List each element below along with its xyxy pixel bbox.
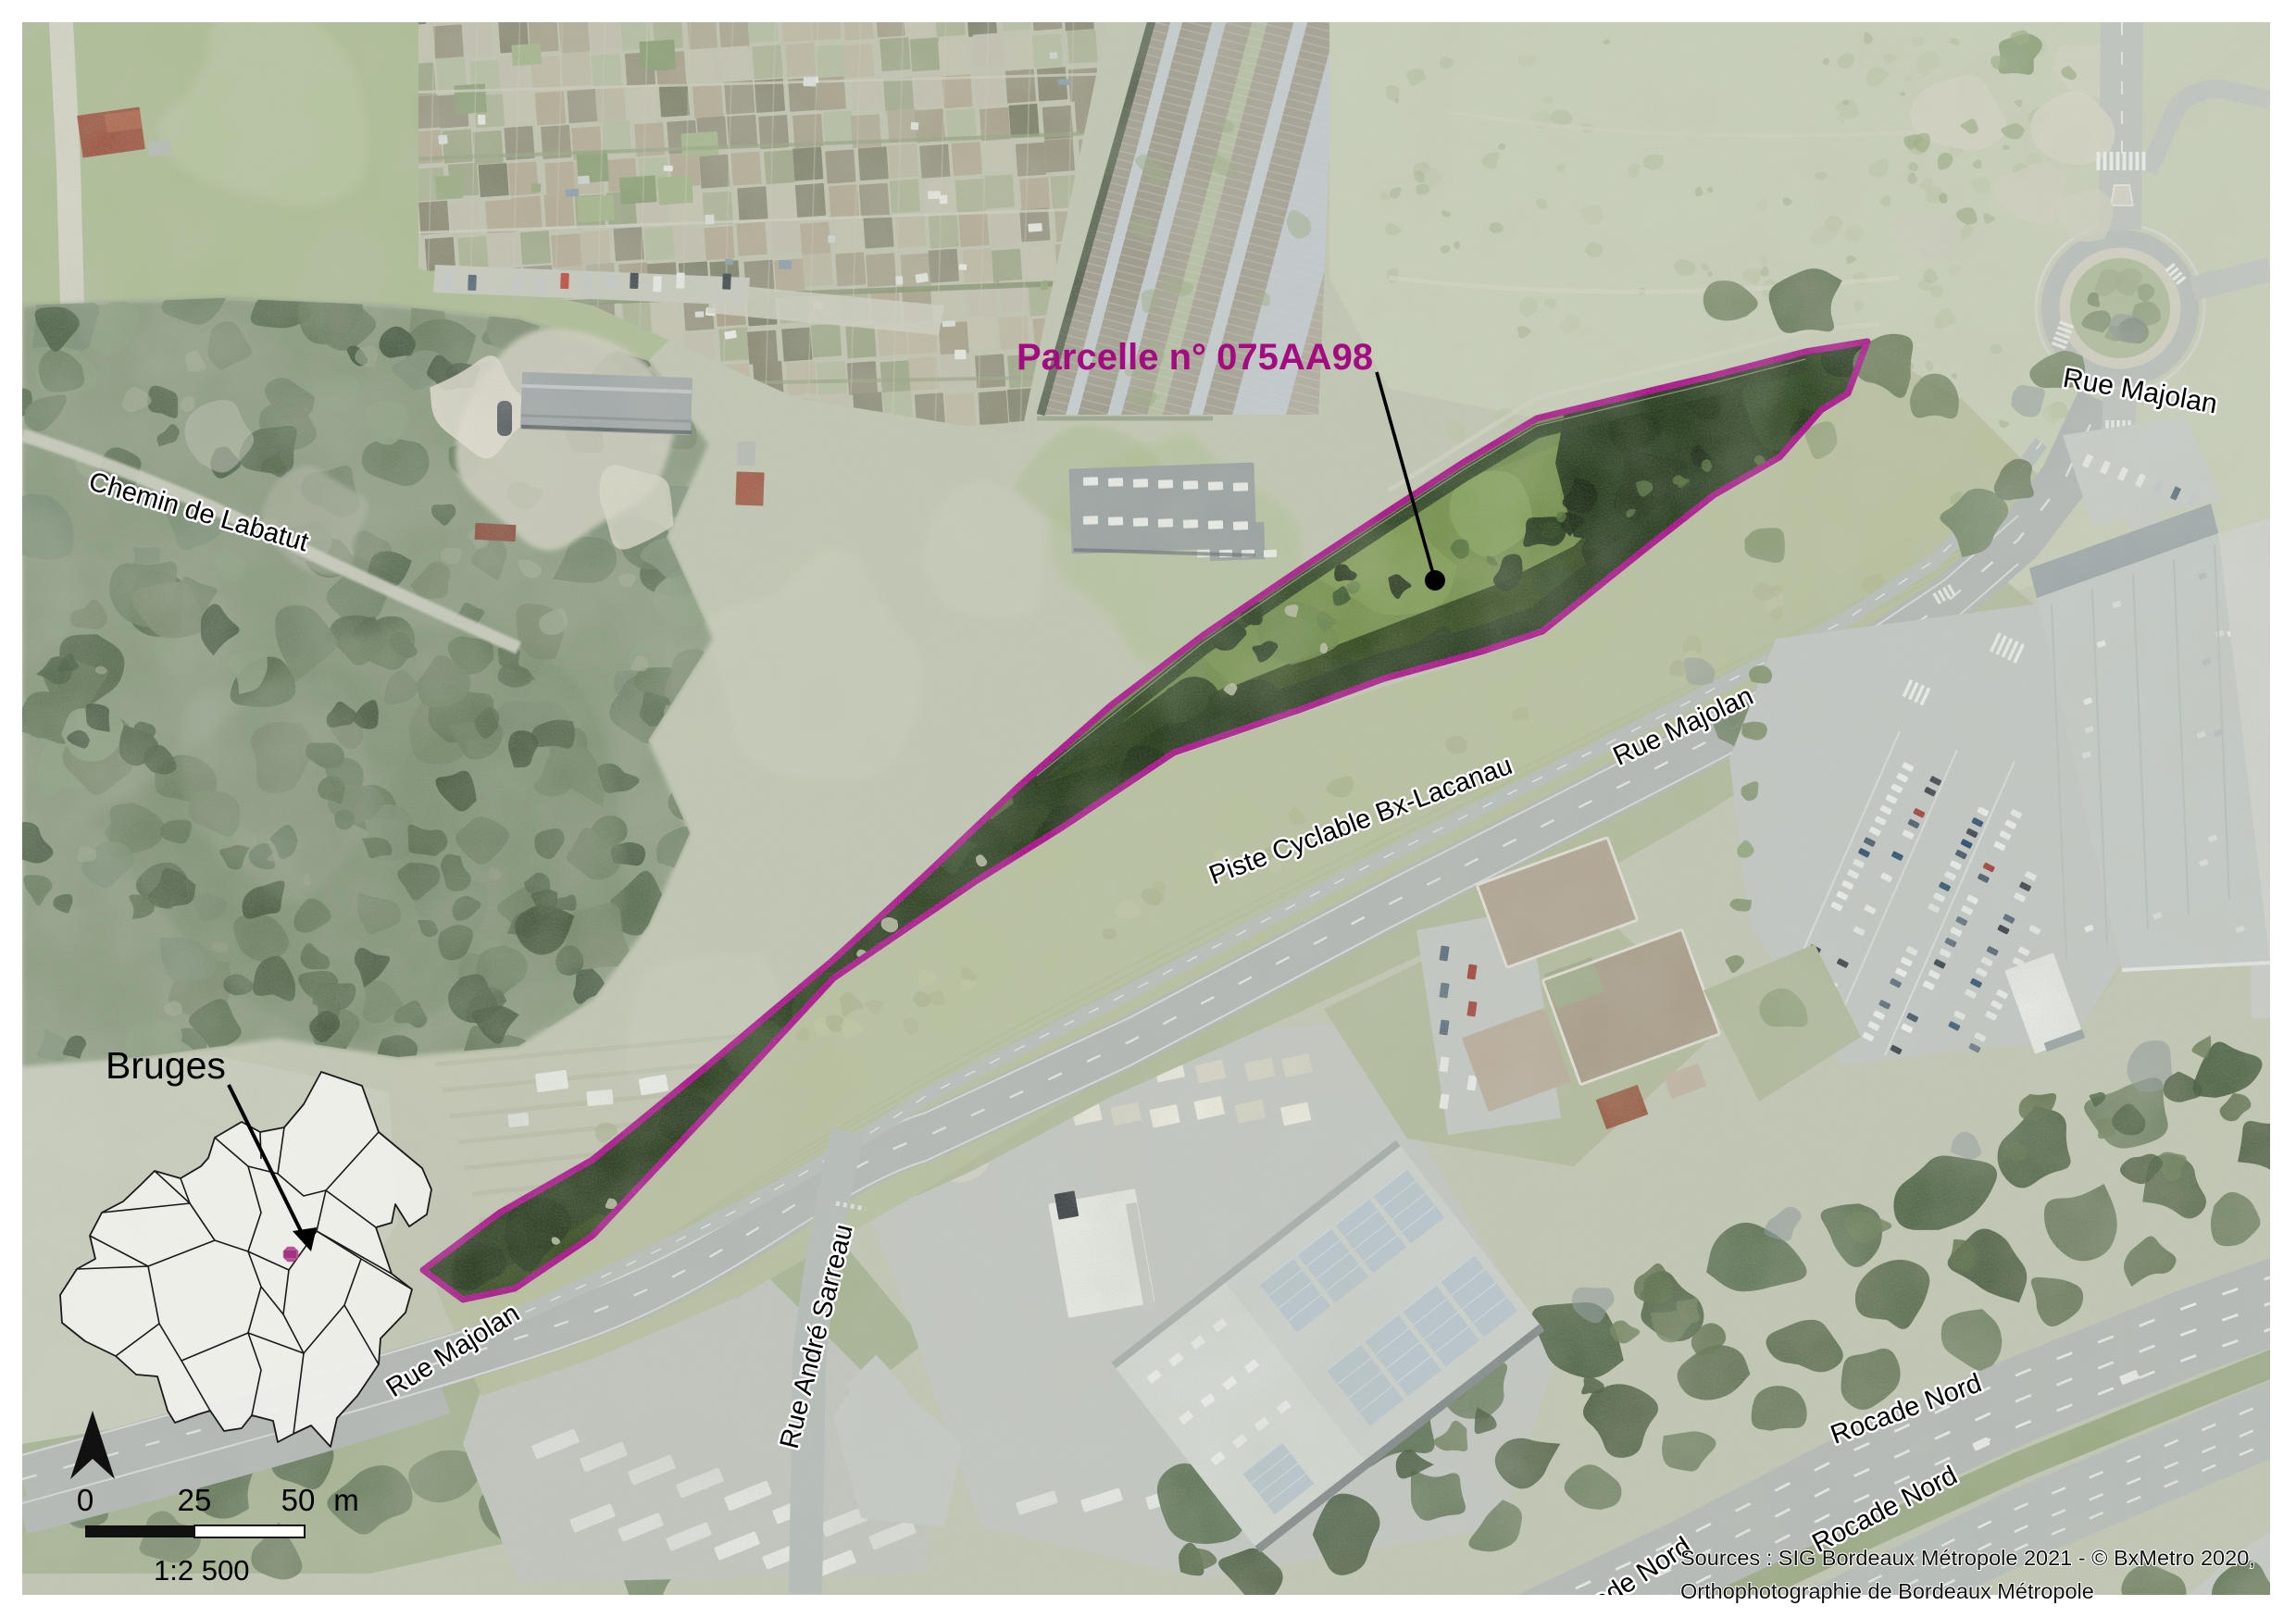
svg-text:50: 50 (281, 1483, 316, 1517)
svg-text:Bruges: Bruges (106, 1044, 226, 1087)
svg-text:0: 0 (77, 1483, 94, 1517)
svg-text:1:2 500: 1:2 500 (154, 1554, 249, 1587)
svg-text:Sources : SIG Bordeaux Métropo: Sources : SIG Bordeaux Métropole 2021 - … (1680, 1546, 2255, 1570)
svg-text:m: m (333, 1483, 359, 1517)
svg-text:Orthophotographie de Bordeaux: Orthophotographie de Bordeaux Métropole (1680, 1579, 2094, 1603)
svg-text:Parcelle n° 075AA98: Parcelle n° 075AA98 (1017, 337, 1373, 378)
svg-text:25: 25 (178, 1483, 212, 1517)
